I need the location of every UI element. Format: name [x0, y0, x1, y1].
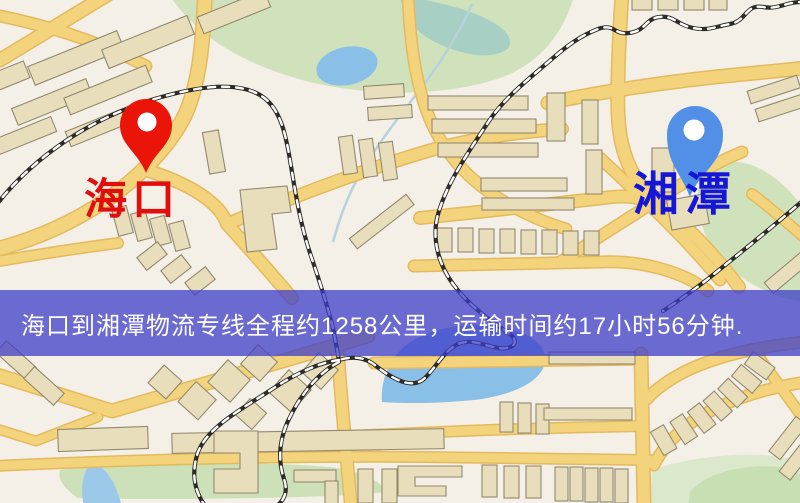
route-info-text: 海口到湘潭物流专线全程约1258公里，运输时间约17小时56分钟.: [0, 306, 743, 341]
logistics-map-image: 海口 湘潭 海口到湘潭物流专线全程约1258公里，运输时间约17小时56分钟.: [0, 0, 800, 503]
destination-city-label: 湘潭: [633, 172, 737, 218]
origin-city-label: 海口: [84, 179, 180, 222]
route-info-banner: 海口到湘潭物流专线全程约1258公里，运输时间约17小时56分钟.: [0, 290, 800, 356]
map-canvas[interactable]: [0, 0, 800, 503]
